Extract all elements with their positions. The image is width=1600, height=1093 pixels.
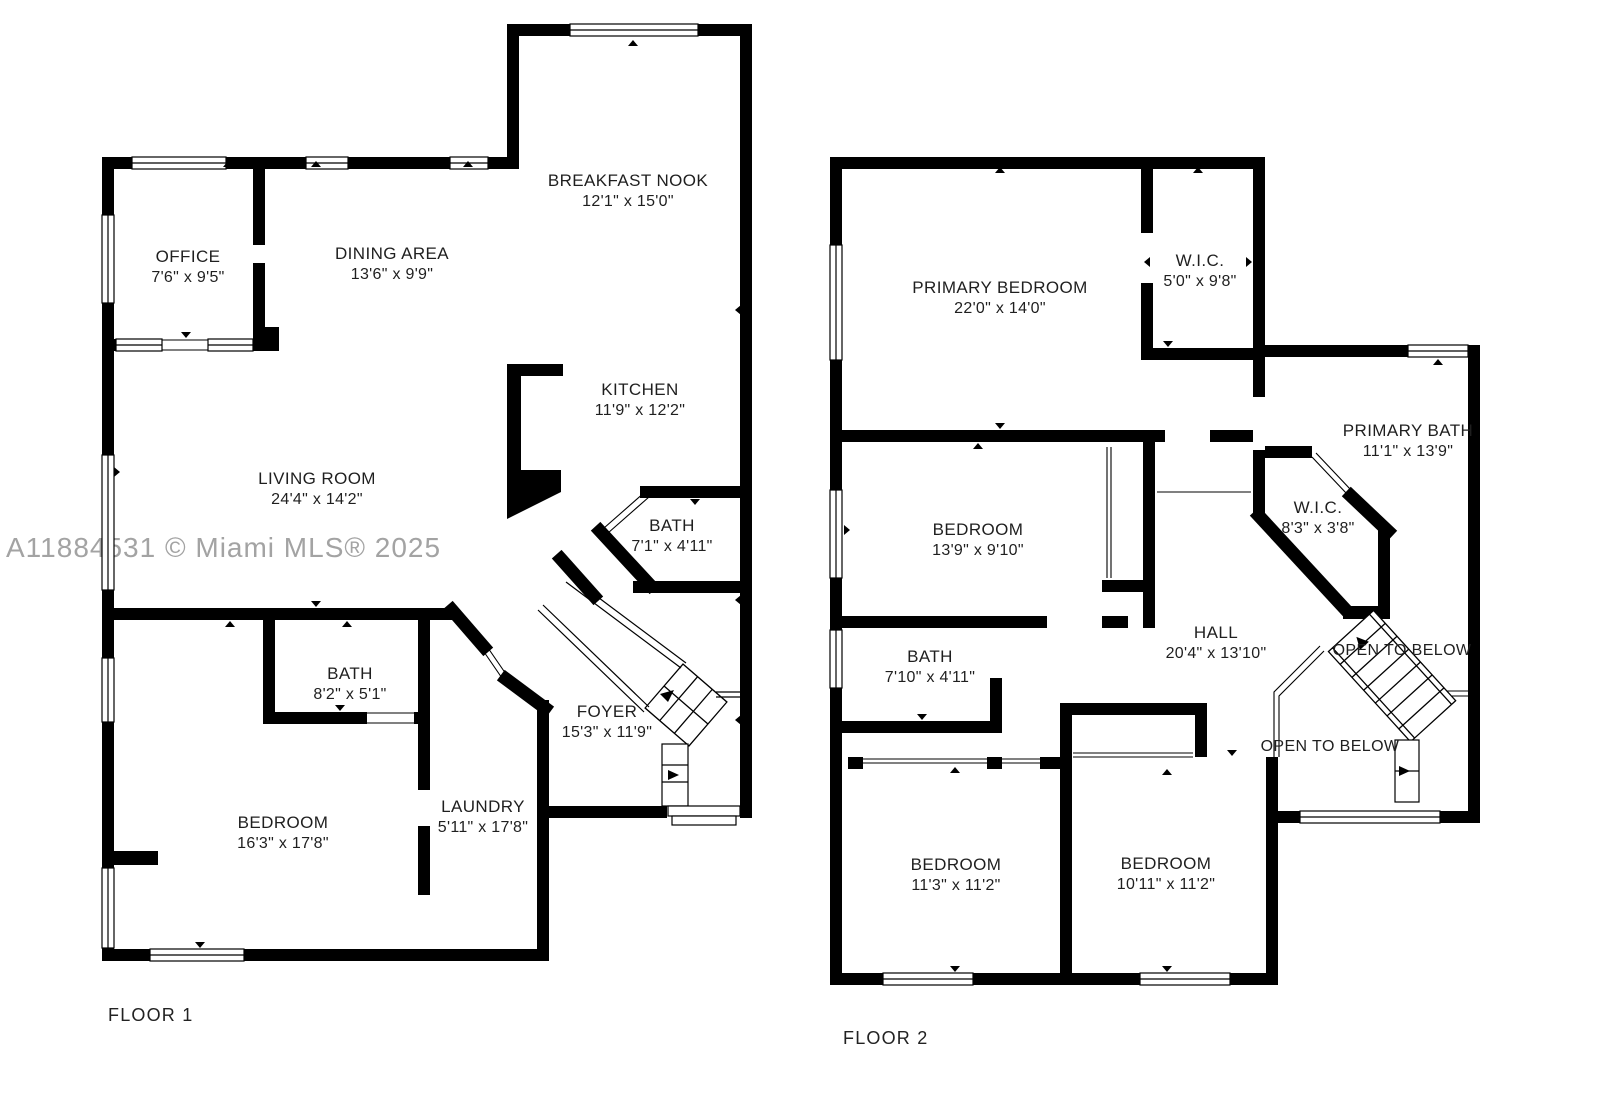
- room-name: OFFICE: [151, 246, 224, 267]
- room-dims: 7'1" x 4'11": [631, 536, 712, 557]
- room-dims: 16'3" x 17'8": [237, 833, 329, 854]
- room-label-dining-area: DINING AREA 13'6" x 9'9": [335, 243, 449, 285]
- room-label-bedroom-139: BEDROOM 13'9" x 9'10": [932, 519, 1024, 561]
- annotation-text: OPEN TO BELOW: [1261, 736, 1400, 757]
- room-name: BATH: [885, 646, 975, 667]
- room-dims: 11'9" x 12'2": [595, 400, 685, 421]
- room-dims: 7'6" x 9'5": [151, 267, 224, 288]
- room-name: LIVING ROOM: [258, 468, 376, 489]
- room-dims: 15'3" x 11'9": [562, 722, 652, 743]
- floor1-door-leaves: [482, 492, 649, 681]
- floorplan-canvas: A11884531 © Miami MLS® 2025: [0, 0, 1600, 1093]
- entry-porch-steps: [668, 806, 740, 825]
- room-dims: 12'1" x 15'0": [548, 191, 708, 212]
- room-label-primary-bedroom: PRIMARY BEDROOM 22'0" x 14'0": [912, 277, 1087, 319]
- room-name: BEDROOM: [1117, 853, 1215, 874]
- floor1-tag: FLOOR 1: [108, 1005, 193, 1026]
- room-name: FOYER: [562, 701, 652, 722]
- room-name: BATH: [313, 663, 386, 684]
- room-name: PRIMARY BEDROOM: [912, 277, 1087, 298]
- room-label-foyer: FOYER 15'3" x 11'9": [562, 701, 652, 743]
- room-name: BEDROOM: [911, 854, 1002, 875]
- room-dims: 11'3" x 11'2": [911, 875, 1002, 896]
- room-label-bath-1: BATH 7'1" x 4'11": [631, 515, 712, 557]
- room-name: W.I.C.: [1281, 497, 1354, 518]
- room-dims: 8'2" x 5'1": [313, 684, 386, 705]
- stair-platform: [645, 664, 727, 746]
- room-name: BEDROOM: [932, 519, 1024, 540]
- room-name: BEDROOM: [237, 812, 329, 833]
- room-label-bath-2: BATH 8'2" x 5'1": [313, 663, 386, 705]
- room-label-bedroom-f1: BEDROOM 16'3" x 17'8": [237, 812, 329, 854]
- room-dims: 13'9" x 9'10": [932, 540, 1024, 561]
- room-label-kitchen: KITCHEN 11'9" x 12'2": [595, 379, 685, 421]
- room-dims: 11'1" x 13'9": [1343, 441, 1473, 462]
- room-dims: 13'6" x 9'9": [335, 264, 449, 285]
- room-label-living-room: LIVING ROOM 24'4" x 14'2": [258, 468, 376, 510]
- room-label-wic-1: W.I.C. 5'0" x 9'8": [1163, 250, 1236, 292]
- stair-flight-diagonal: [1328, 610, 1455, 741]
- room-label-bath-f2: BATH 7'10" x 4'11": [885, 646, 975, 688]
- room-label-bedroom-1011: BEDROOM 10'11" x 11'2": [1117, 853, 1215, 895]
- room-label-breakfast-nook: BREAKFAST NOOK 12'1" x 15'0": [548, 170, 708, 212]
- room-dims: 22'0" x 14'0": [912, 298, 1087, 319]
- room-label-primary-bath: PRIMARY BATH 11'1" x 13'9": [1343, 420, 1473, 462]
- room-name: PRIMARY BATH: [1343, 420, 1473, 441]
- room-label-laundry: LAUNDRY 5'11" x 17'8": [438, 796, 528, 838]
- room-label-hall: HALL 20'4" x 13'10": [1166, 622, 1267, 664]
- annotation-text: OPEN TO BELOW: [1333, 640, 1472, 661]
- room-label-wic-2: W.I.C. 8'3" x 3'8": [1281, 497, 1354, 539]
- floor2-tag: FLOOR 2: [843, 1028, 928, 1049]
- room-dims: 10'11" x 11'2": [1117, 874, 1215, 895]
- room-dims: 5'0" x 9'8": [1163, 271, 1236, 292]
- room-name: BATH: [631, 515, 712, 536]
- room-dims: 8'3" x 3'8": [1281, 518, 1354, 539]
- floorplan-drawing: [0, 0, 1600, 1093]
- room-name: DINING AREA: [335, 243, 449, 264]
- room-label-bedroom-113: BEDROOM 11'3" x 11'2": [911, 854, 1002, 896]
- room-dims: 24'4" x 14'2": [258, 489, 376, 510]
- annotation-open-to-below-upper: OPEN TO BELOW: [1333, 640, 1472, 661]
- room-name: HALL: [1166, 622, 1267, 643]
- floor2-thin-lines: [863, 447, 1468, 763]
- room-name: W.I.C.: [1163, 250, 1236, 271]
- room-name: LAUNDRY: [438, 796, 528, 817]
- room-name: BREAKFAST NOOK: [548, 170, 708, 191]
- room-name: KITCHEN: [595, 379, 685, 400]
- room-dims: 7'10" x 4'11": [885, 667, 975, 688]
- room-dims: 5'11" x 17'8": [438, 817, 528, 838]
- room-dims: 20'4" x 13'10": [1166, 643, 1267, 664]
- annotation-open-to-below-lower: OPEN TO BELOW: [1261, 736, 1400, 757]
- room-label-office: OFFICE 7'6" x 9'5": [151, 246, 224, 288]
